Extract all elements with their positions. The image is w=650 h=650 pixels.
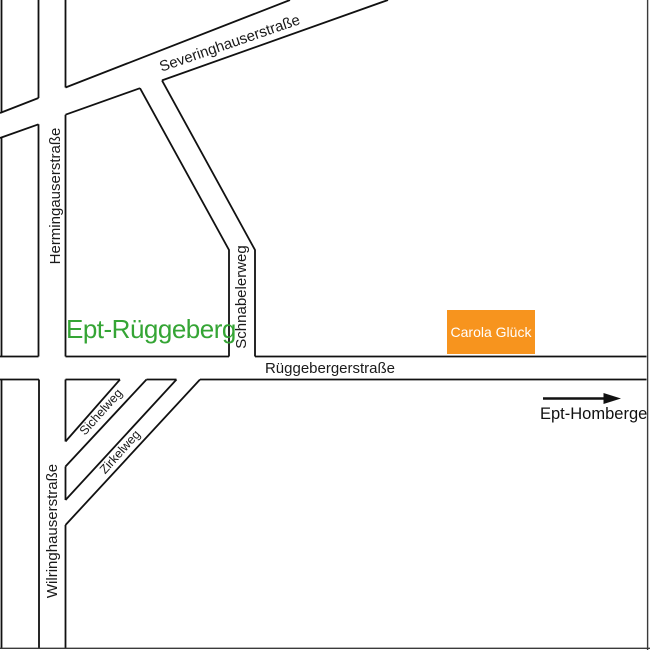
street-map: Severinghauserstraße Hermingauserstraße … <box>0 0 650 650</box>
street-label-schnabelerweg: Schnabelerweg <box>234 222 250 372</box>
street-label-hermingauserstrasse: Hermingauserstraße <box>48 121 64 271</box>
street-label-wilringhauserstrasse: Wilringhauserstraße <box>45 456 61 606</box>
right-arrow-icon <box>543 393 621 404</box>
road-severinghauserstrasse <box>0 0 388 138</box>
direction-label: Ept-Homberge <box>540 405 647 424</box>
place-label: Ept-Rüggeberg <box>66 314 236 345</box>
road-sichelweg-zirkelweg <box>66 380 201 526</box>
marker-label: Carola Glück <box>451 324 532 340</box>
marker-carola-glueck: Carola Glück <box>447 310 535 354</box>
street-label-rueggebergerstrasse: Rüggebergerstraße <box>250 361 410 377</box>
